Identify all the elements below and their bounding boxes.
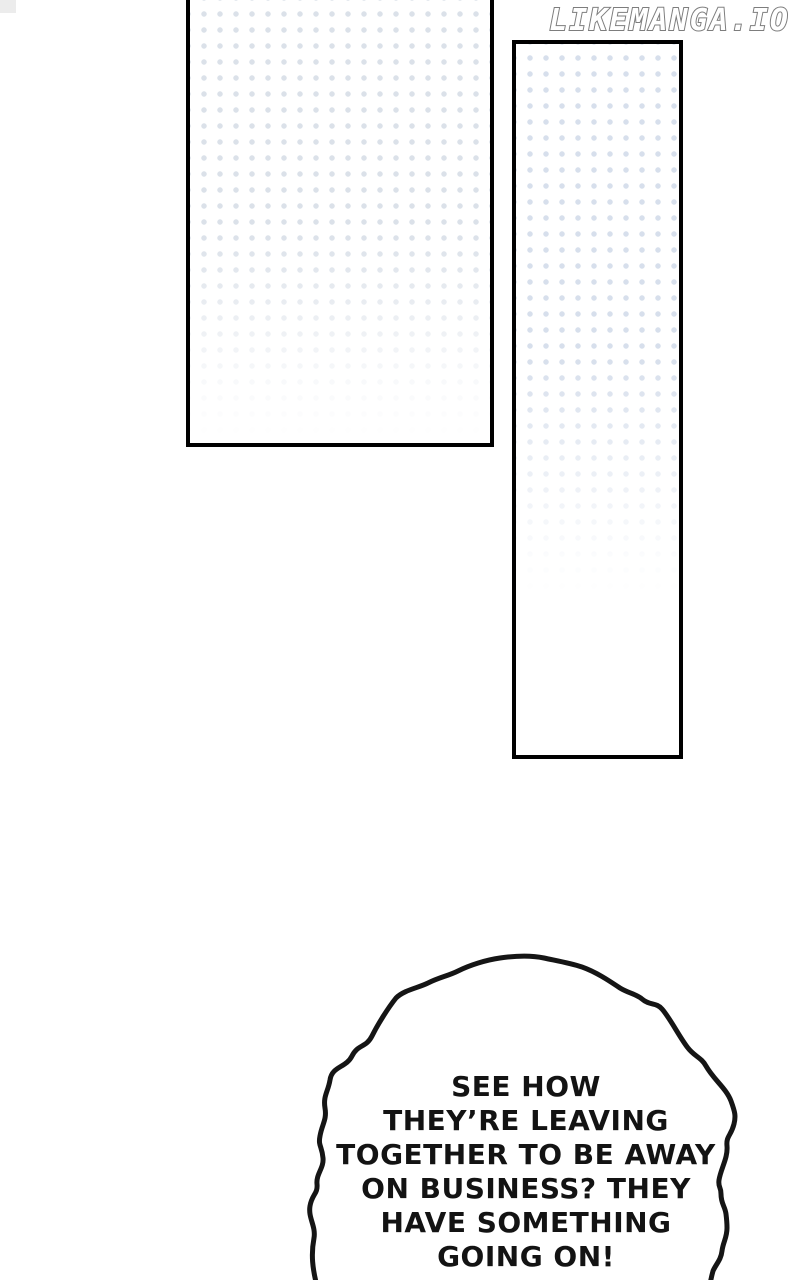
comic-panel-top-left <box>186 0 494 447</box>
site-watermark: LIKEMANGA.IO <box>549 3 790 38</box>
corner-artifact <box>0 0 16 13</box>
manga-page: LIKEMANGA.IO SEE HOW THEY’RE LEAVING TOG… <box>0 0 800 1280</box>
halftone-fade <box>190 0 490 443</box>
halftone-fade <box>516 44 679 755</box>
speech-bubble-text: SEE HOW THEY’RE LEAVING TOGETHER TO BE A… <box>306 1070 746 1274</box>
comic-panel-right <box>512 40 683 759</box>
